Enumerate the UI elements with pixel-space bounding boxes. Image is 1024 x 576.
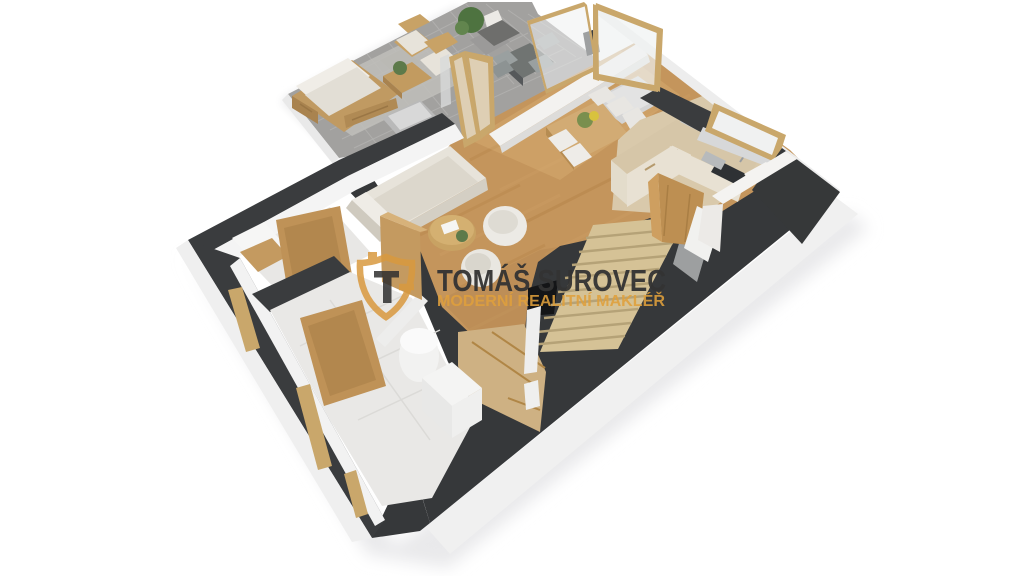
svg-text:MODERNÍ REALITNÍ MAKLÉŘ: MODERNÍ REALITNÍ MAKLÉŘ	[437, 291, 665, 310]
